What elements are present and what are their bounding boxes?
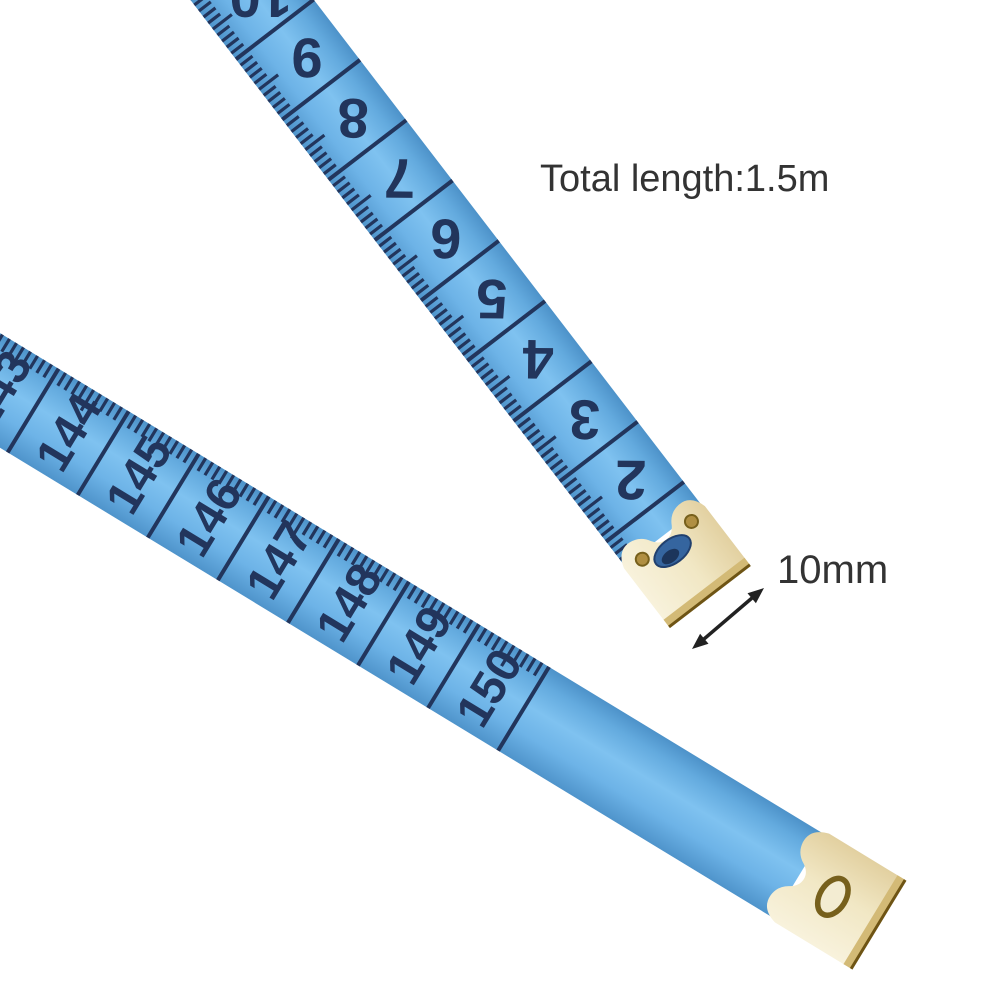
- measuring-tape-product-photo: 2345678910 143144145146147148149150 Tota…: [0, 0, 1002, 1000]
- tape-number: 4: [522, 328, 554, 391]
- tape-number: 2: [615, 449, 647, 512]
- tip-width-label: 10mm: [777, 548, 888, 592]
- tape-number: 8: [337, 87, 369, 150]
- tape-number: 7: [384, 147, 416, 210]
- tape-number: 9: [291, 27, 323, 90]
- total-length-label: Total length:1.5m: [540, 158, 829, 200]
- tape-number: 5: [476, 268, 508, 331]
- tape-number: 10: [229, 0, 292, 30]
- tape-number: 3: [569, 388, 601, 451]
- tape-number: 6: [430, 207, 462, 270]
